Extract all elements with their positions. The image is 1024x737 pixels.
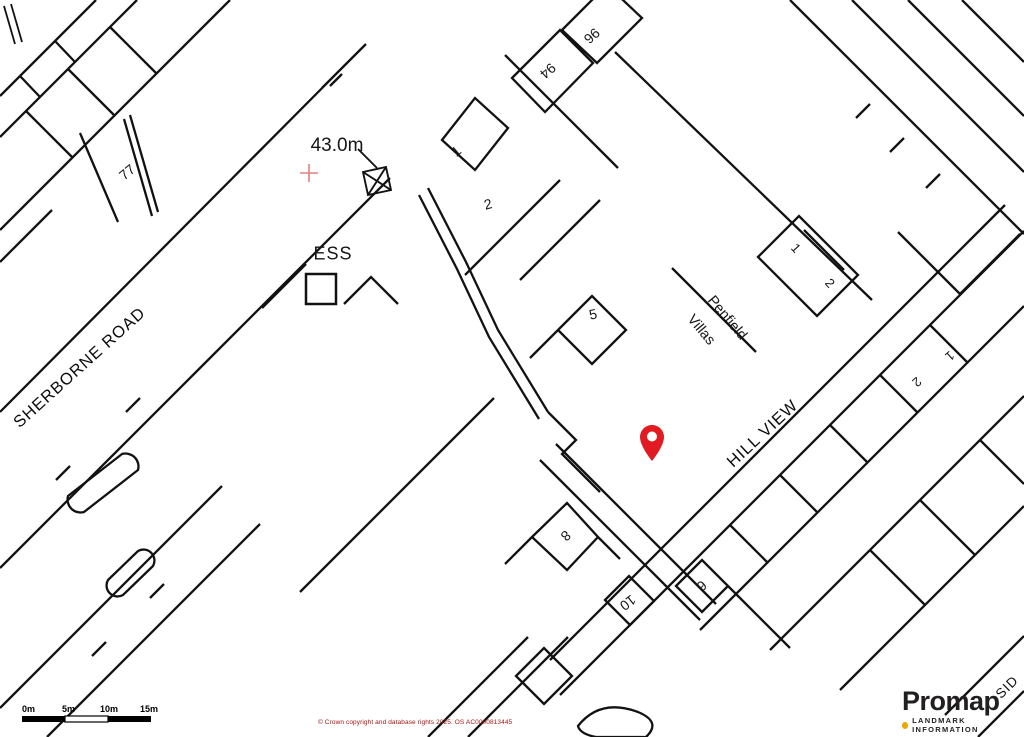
ess-substation	[306, 274, 336, 304]
terraces-right	[700, 306, 1024, 690]
road-island	[68, 454, 139, 513]
landmark-dot-icon	[902, 722, 908, 729]
road-island-small	[107, 550, 155, 597]
map-canvas[interactable]: 43.0m ESS SHERBORNE ROAD HILL VIEW SID P…	[0, 0, 1024, 737]
benchmark-cross	[299, 163, 319, 183]
promap-wordmark: Promap	[902, 688, 1020, 715]
scale-bar: 0m 5m 10m 15m	[14, 700, 214, 732]
scale-tick-5: 5m	[62, 704, 75, 714]
buildings-bottom	[428, 503, 790, 737]
scale-tick-15: 15m	[140, 704, 158, 714]
location-pin[interactable]	[639, 424, 665, 464]
scale-tick-0: 0m	[22, 704, 35, 714]
corner-mark	[4, 4, 22, 44]
scale-tick-10: 10m	[100, 704, 118, 714]
ess-plot	[262, 264, 398, 308]
terraces-top-left	[0, 0, 230, 262]
copyright-notice: © Crown copyright and database rights 20…	[318, 719, 512, 726]
ess-label: ESS	[313, 244, 352, 265]
landmark-tagline: LANDMARK INFORMATION	[912, 716, 1020, 734]
buildings-top-centre	[442, 0, 872, 364]
promap-logo: Promap LANDMARK INFORMATION	[902, 688, 1020, 734]
map-linework	[0, 0, 1024, 737]
spot-height-label: 43.0m	[311, 135, 364, 157]
hill-view-edges	[550, 205, 1024, 695]
